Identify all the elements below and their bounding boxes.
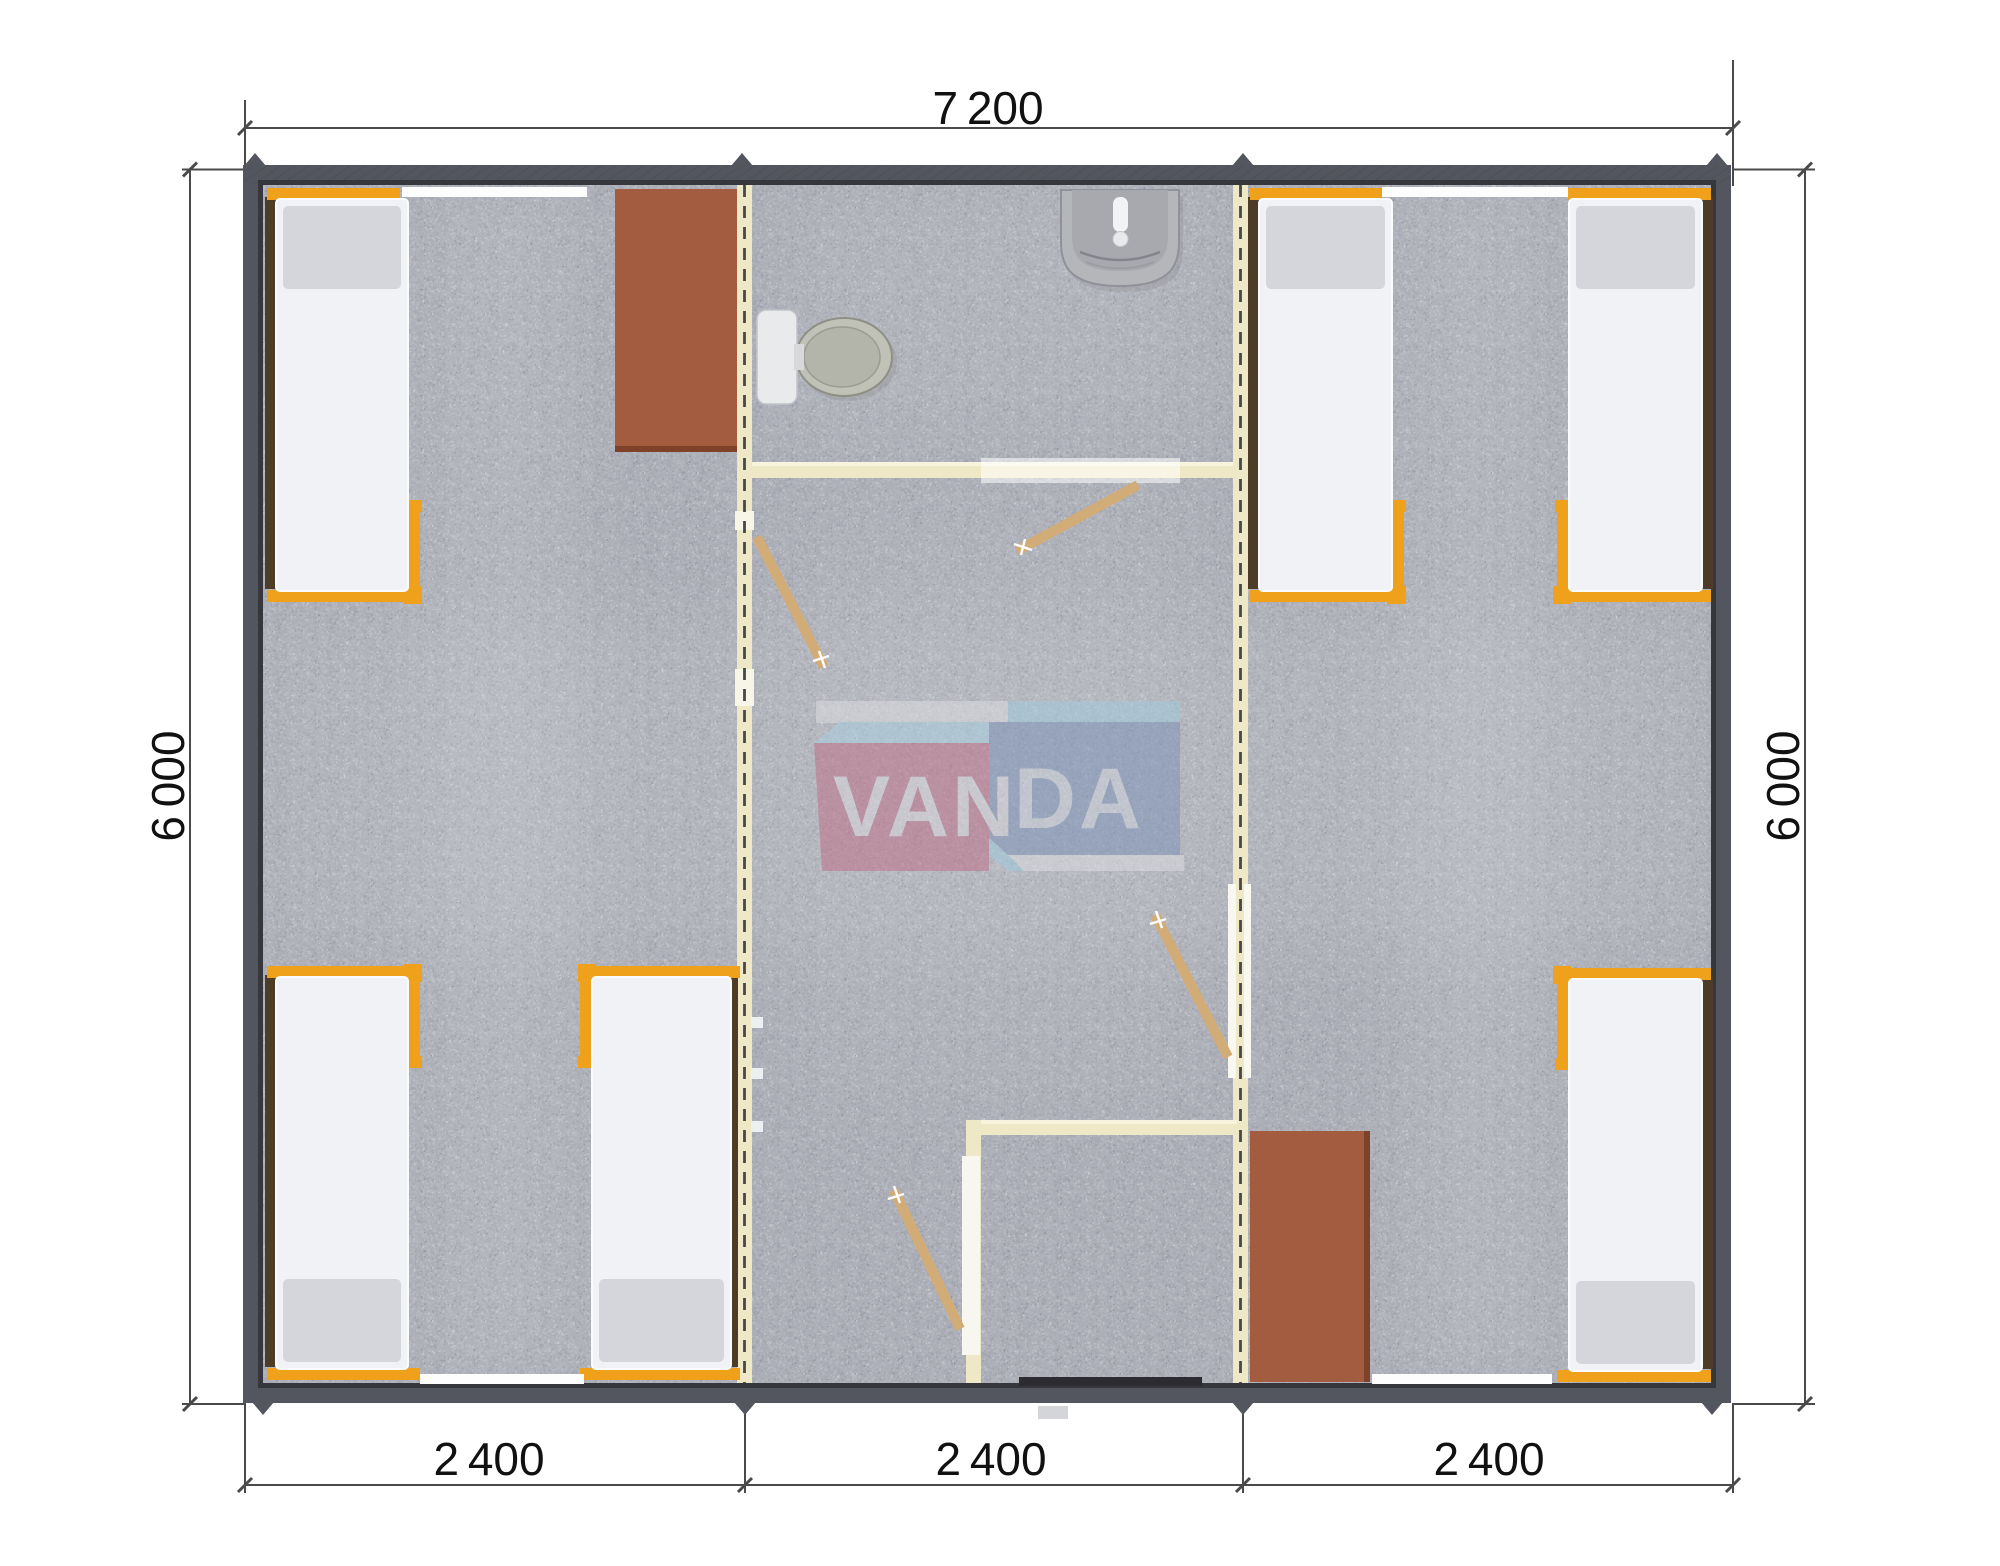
- svg-text:6 000: 6 000: [1757, 730, 1809, 841]
- svg-text:2 400: 2 400: [1433, 1433, 1544, 1485]
- svg-text:VAN: VAN: [833, 759, 1017, 855]
- svg-text:7 200: 7 200: [932, 82, 1043, 134]
- svg-text:DA: DA: [1014, 751, 1144, 847]
- svg-text:2 400: 2 400: [433, 1433, 544, 1485]
- svg-text:2 400: 2 400: [935, 1433, 1046, 1485]
- svg-text:6 000: 6 000: [142, 730, 194, 841]
